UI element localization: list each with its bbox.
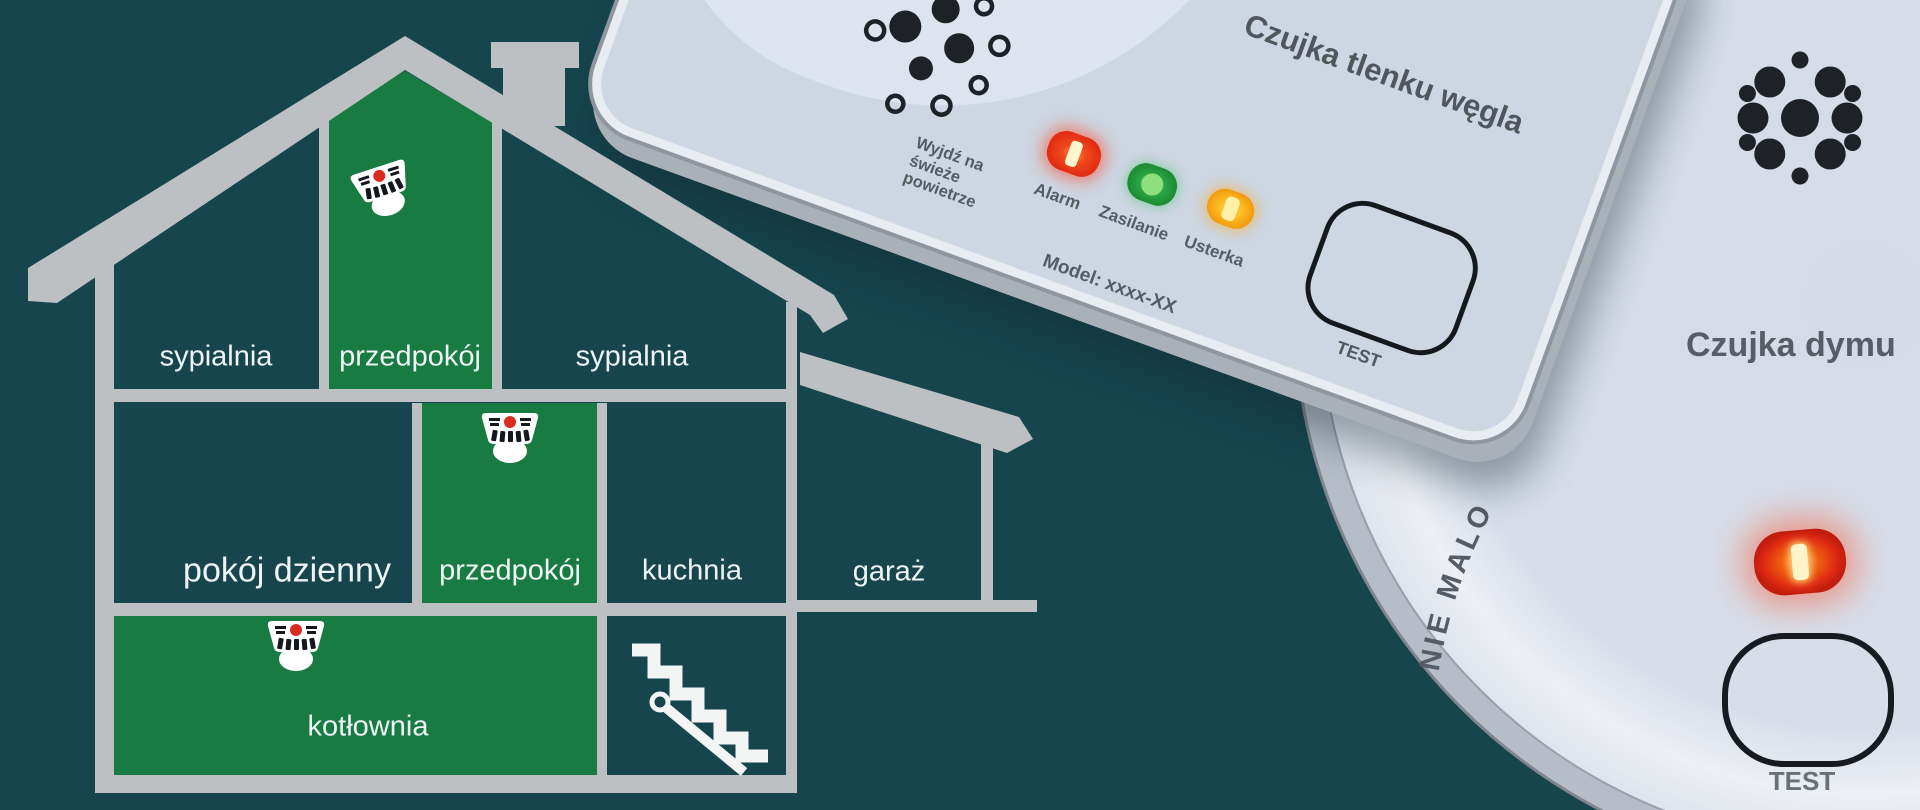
attic-wall-right: [492, 122, 502, 389]
room-label-kuchnia: kuchnia: [642, 555, 742, 588]
room-label-przedpokoj-middle: przedpokój: [439, 555, 581, 588]
first-floor: [114, 603, 797, 616]
wall-right: [786, 302, 797, 793]
room-label-sypialnia-right: sypialnia: [576, 341, 689, 374]
room-label-sypialnia-left: sypialnia: [160, 341, 273, 374]
smoke-detector-icon: [265, 618, 327, 679]
garage-wall-right: [981, 440, 993, 612]
garage-roof: [800, 352, 1033, 453]
stairs-icon: [632, 650, 768, 772]
wall-left: [95, 250, 114, 793]
room-label-pokoj-dzienny: pokój dzienny: [183, 552, 391, 591]
smoke-detector-icon: [479, 410, 541, 471]
room-kotlownia: [114, 616, 597, 775]
garage-floor: [797, 600, 1037, 612]
wall-bottom: [95, 775, 797, 793]
wall-przedpokoj-left: [412, 403, 422, 603]
attic-wall-left: [319, 116, 329, 389]
room-label-garaz: garaż: [853, 556, 926, 589]
house-cross-section: [0, 0, 1920, 810]
room-label-przedpokoj-attic: przedpokój: [339, 341, 481, 374]
attic-floor: [114, 389, 797, 402]
wall-przedpokoj-right: [597, 403, 607, 775]
room-label-kotlownia: kotłownia: [308, 711, 429, 744]
